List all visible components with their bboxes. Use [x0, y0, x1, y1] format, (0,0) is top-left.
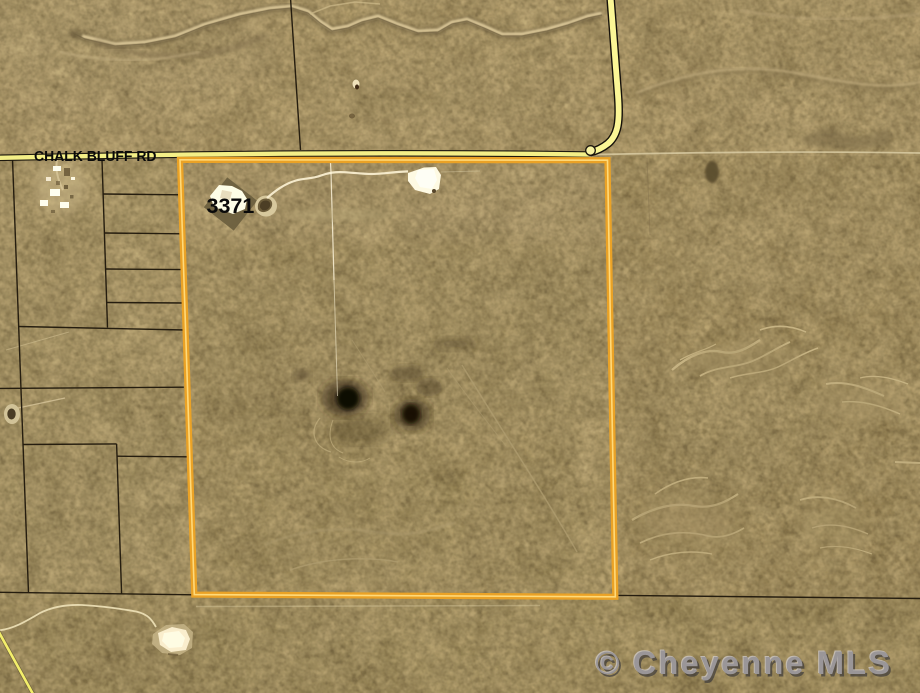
svg-text:3371: 3371 [207, 194, 255, 218]
svg-text:CHALK BLUFF RD: CHALK BLUFF RD [34, 149, 157, 165]
svg-text:© Cheyenne MLS: © Cheyenne MLS [596, 645, 893, 681]
